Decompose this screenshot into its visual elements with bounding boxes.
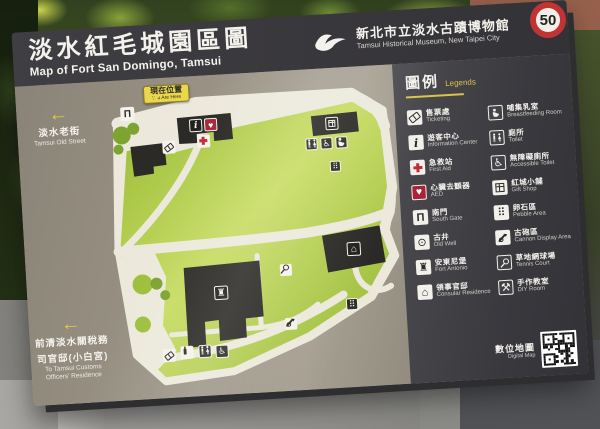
- cannon-icon: [495, 230, 511, 246]
- legend-item-labels: 卵石區Pebble Area: [512, 203, 545, 219]
- aed-icon: ♥: [411, 184, 427, 200]
- toilet-icon: [489, 130, 505, 146]
- map-pebble-icon-1: ⠿: [330, 161, 342, 173]
- map-residence-icon: ⌂: [346, 241, 361, 256]
- old-well-icon: ⊙: [414, 234, 430, 250]
- map-aed-icon: ♥: [204, 118, 218, 132]
- legend-item-labels: 哺集乳室Breastfeeding Room: [507, 102, 562, 119]
- legend-title-zh: 圖例: [404, 71, 439, 94]
- wheelchair-icon: ♿: [491, 155, 507, 171]
- title-block: 淡水紅毛城園區圖 Map of Fort San Domingo, Tamsui: [12, 26, 254, 79]
- map-nursing-icon: [335, 136, 348, 149]
- map-toilet-icon: [305, 138, 318, 151]
- gift-icon: [492, 180, 508, 196]
- map-ticket-icon: [162, 140, 176, 154]
- you-are-here-badge: 現在位置 You Are Here: [143, 83, 190, 104]
- photo-of-map-sign: 50 淡水紅毛城園區圖 Map of Fort San Domingo, Tam…: [0, 0, 600, 429]
- map-first-aid-icon: [197, 134, 211, 148]
- legend-label-en: Toilet: [509, 137, 525, 144]
- legend-item-diy-room: ⚒手作教室DIY Room: [498, 271, 576, 301]
- map-toilet-icon-2: [198, 345, 212, 359]
- map-tennis-icon: [280, 264, 293, 277]
- legend-item-labels: 急救站First Aid: [429, 158, 454, 174]
- you-are-here-en: You Are Here: [150, 95, 182, 102]
- map-ticket-icon-2: [162, 349, 176, 363]
- sign-post-right: [420, 378, 460, 429]
- park-map: 現在位置 You Are Here Πi♥♿⠿⌂♜⠿♿: [99, 71, 411, 394]
- map-pebble-icon-2: ⠿: [346, 298, 359, 311]
- map-fort-icon: ♜: [214, 285, 229, 300]
- map-cannon-icon: [285, 317, 298, 330]
- nursing-icon: [488, 105, 504, 121]
- legend-item-consular-residence: ⌂領事官邸Consular Residence: [417, 276, 495, 306]
- legend-item-labels: 草地網球場Tennis Court: [515, 252, 556, 269]
- legend-item-labels: 古砲區Cannon Display Area: [514, 226, 571, 243]
- museum-logo-icon: [312, 28, 349, 54]
- digital-map-label: 數位地圖 Digital Map: [495, 342, 536, 361]
- info-icon: i: [408, 135, 424, 151]
- map-gift-icon: [325, 117, 339, 131]
- legend-rule: [406, 93, 464, 98]
- fort-icon: ♜: [416, 259, 432, 275]
- residence-icon: ⌂: [417, 284, 433, 300]
- map-wheelchair-icon-2: ♿: [215, 345, 229, 359]
- tennis-icon: [496, 255, 512, 271]
- signboard: 淡水紅毛城園區圖 Map of Fort San Domingo, Tamsui…: [11, 0, 588, 406]
- map-drink-icon: [180, 346, 194, 360]
- park-map-svg: [99, 71, 411, 394]
- direction-old-street: ← 淡水老街 Tamsui Old Street: [16, 104, 102, 149]
- digital-map-block: 數位地圖 Digital Map: [494, 330, 578, 371]
- legend-label-en: Ticketing: [426, 116, 450, 124]
- sign-body: ← 淡水老街 Tamsui Old Street ← 前清淡水關稅務 司官邸(小…: [15, 54, 589, 406]
- legend-item-labels: 紅城小舖Gift Shop: [511, 178, 544, 194]
- museum-name: 新北市立淡水古蹟博物館 Tamsui Historical Museum, Ne…: [356, 18, 511, 51]
- legend-item-labels: 售票處Ticketing: [426, 108, 451, 124]
- legend-label-en: Fort Antonio: [435, 265, 468, 273]
- legend-label-en: DIY Room: [517, 286, 549, 294]
- legend-grid: 售票處Ticketingi遊客中心Information Center急救站Fi…: [406, 96, 576, 305]
- south-gate-icon: Π: [413, 209, 429, 225]
- legend-label-en: South Gate: [432, 216, 463, 224]
- ticket-icon: [407, 110, 423, 126]
- legend-panel: 圖例 Legends 售票處Ticketingi遊客中心Information …: [392, 54, 589, 384]
- qr-code: [540, 330, 578, 368]
- direction-customs-residence: ← 前清淡水關稅務 司官邸(小白宮) To Tamsui Customs Off…: [28, 313, 116, 382]
- legend-item-labels: 無障礙廁所Accessible Toilet: [510, 152, 555, 169]
- legend-label-en: First Aid: [429, 166, 453, 174]
- qr-module: [573, 361, 576, 364]
- first-aid-icon: [410, 160, 426, 176]
- legend-item-labels: 遊客中心Information Center: [427, 132, 477, 149]
- legend-item-labels: 安東尼堡Fort Antonio: [435, 258, 468, 274]
- legend-item-labels: 手作教室DIY Room: [517, 278, 550, 294]
- map-info-icon: i: [189, 119, 203, 133]
- diy-icon: ⚒: [498, 280, 514, 296]
- legend-item-labels: 心臟去顫器AED: [430, 182, 471, 199]
- legend-item-labels: 廁所Toilet: [508, 129, 525, 144]
- legend-label-en: Pebble Area: [513, 211, 546, 219]
- legend-header: 圖例 Legends: [404, 63, 563, 93]
- legend-label-en: Gift Shop: [511, 186, 543, 194]
- legend-label-en: Accessible Toilet: [510, 160, 555, 169]
- map-south-gate-icon: Π: [120, 107, 135, 122]
- legend-item-labels: 領事官邸Consular Residence: [436, 281, 491, 298]
- pebble-icon: ⠿: [493, 205, 509, 221]
- legend-label-en: Old Well: [434, 241, 457, 249]
- map-wheelchair-icon: ♿: [320, 137, 333, 150]
- legend-title-en: Legends: [445, 77, 476, 88]
- legend-item-labels: 古井Old Well: [433, 233, 456, 248]
- legend-item-labels: 南門South Gate: [432, 208, 463, 224]
- legend-label-en: AED: [431, 190, 471, 199]
- legend-label-en: Tennis Court: [516, 260, 556, 269]
- speed-limit-sign: 50: [530, 2, 566, 38]
